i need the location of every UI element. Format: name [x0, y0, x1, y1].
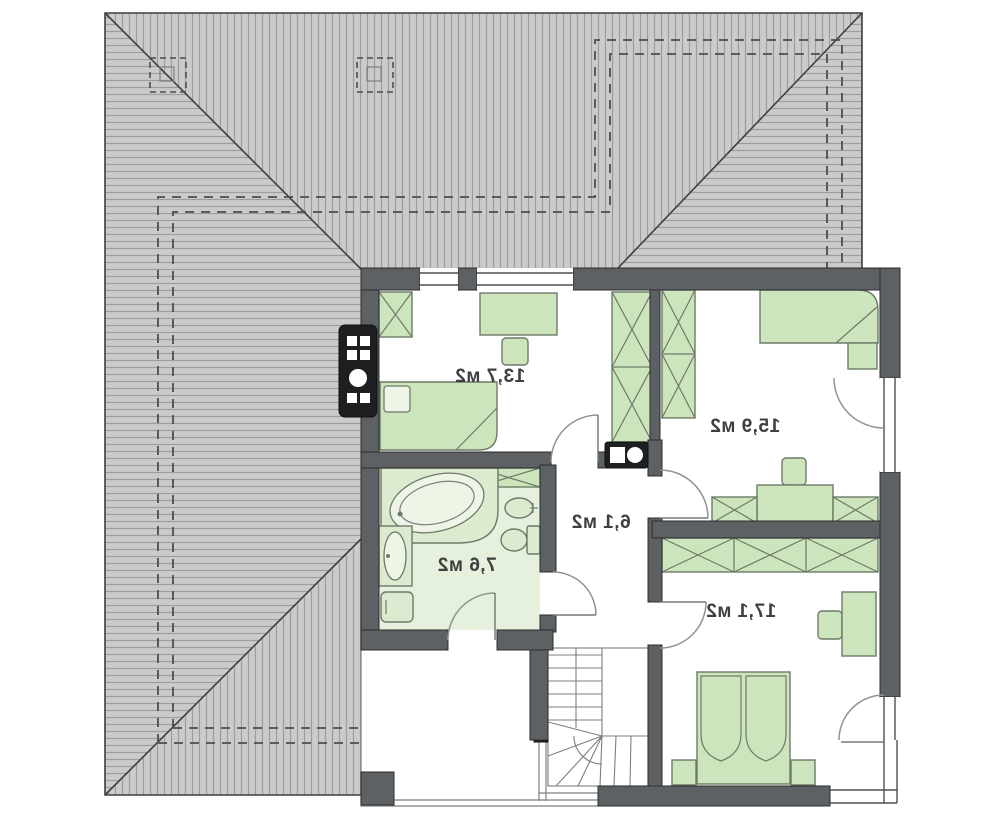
washbasin — [379, 526, 412, 586]
nightstand — [791, 760, 815, 785]
wardrobe — [379, 292, 412, 337]
vent-block-center — [605, 442, 648, 468]
terrace-post — [361, 772, 394, 805]
room-label-7-6: 7,6 м2 — [437, 555, 496, 577]
desk — [757, 485, 833, 523]
wardrobe — [662, 290, 695, 418]
wardrobe — [612, 292, 652, 442]
stool — [502, 338, 528, 365]
wardrobe — [662, 538, 878, 572]
side-table — [848, 343, 877, 369]
vent-block-left — [339, 325, 377, 417]
chair — [782, 458, 806, 485]
room-label-6-1: 6,1 м2 — [571, 512, 630, 534]
window — [477, 268, 573, 290]
toilet — [501, 526, 540, 554]
wardrobe — [712, 497, 757, 523]
balcony-door-frame — [880, 697, 900, 740]
wardrobe — [833, 497, 878, 523]
room-label-17-1: 17,1 м2 — [706, 601, 776, 623]
bed-double — [697, 672, 790, 784]
chair — [818, 611, 842, 639]
balcony-door-frame — [880, 378, 900, 428]
window — [880, 428, 900, 472]
bath-unit — [381, 592, 413, 622]
floor-plan: 13,7 м2 15,9 м2 6,1 м2 7,6 м2 17,1 м2 — [0, 0, 1000, 822]
desk — [842, 592, 876, 656]
floor-plan-drawing — [0, 0, 1000, 822]
bed-single — [380, 382, 497, 450]
room-label-15-9: 15,9 м2 — [710, 416, 780, 438]
nightstand — [672, 760, 696, 785]
window — [420, 268, 458, 290]
bed-single — [760, 290, 878, 343]
desk — [480, 293, 557, 335]
room-label-13-7: 13,7 м2 — [455, 366, 525, 388]
